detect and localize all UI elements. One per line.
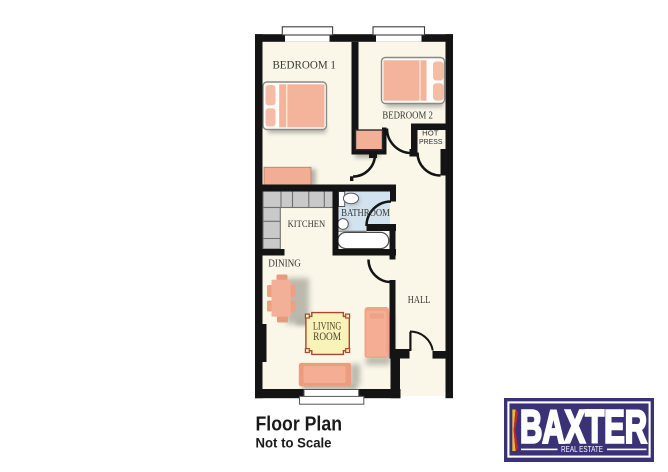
- svg-text:HOT: HOT: [422, 131, 439, 138]
- svg-text:DINING: DINING: [268, 258, 301, 269]
- svg-text:Floor Plan: Floor Plan: [256, 413, 343, 436]
- svg-text:BEDROOM 2: BEDROOM 2: [382, 111, 433, 122]
- svg-text:BEDROOM 1: BEDROOM 1: [272, 60, 336, 72]
- svg-text:Not to Scale: Not to Scale: [256, 435, 332, 450]
- svg-text:HALL: HALL: [408, 294, 431, 306]
- svg-text:PRESS: PRESS: [419, 139, 443, 146]
- svg-text:REAL ESTATE: REAL ESTATE: [561, 445, 603, 454]
- svg-text:BATHROOM: BATHROOM: [341, 208, 390, 219]
- svg-text:KITCHEN: KITCHEN: [288, 219, 326, 230]
- svg-text:ROOM: ROOM: [313, 331, 341, 343]
